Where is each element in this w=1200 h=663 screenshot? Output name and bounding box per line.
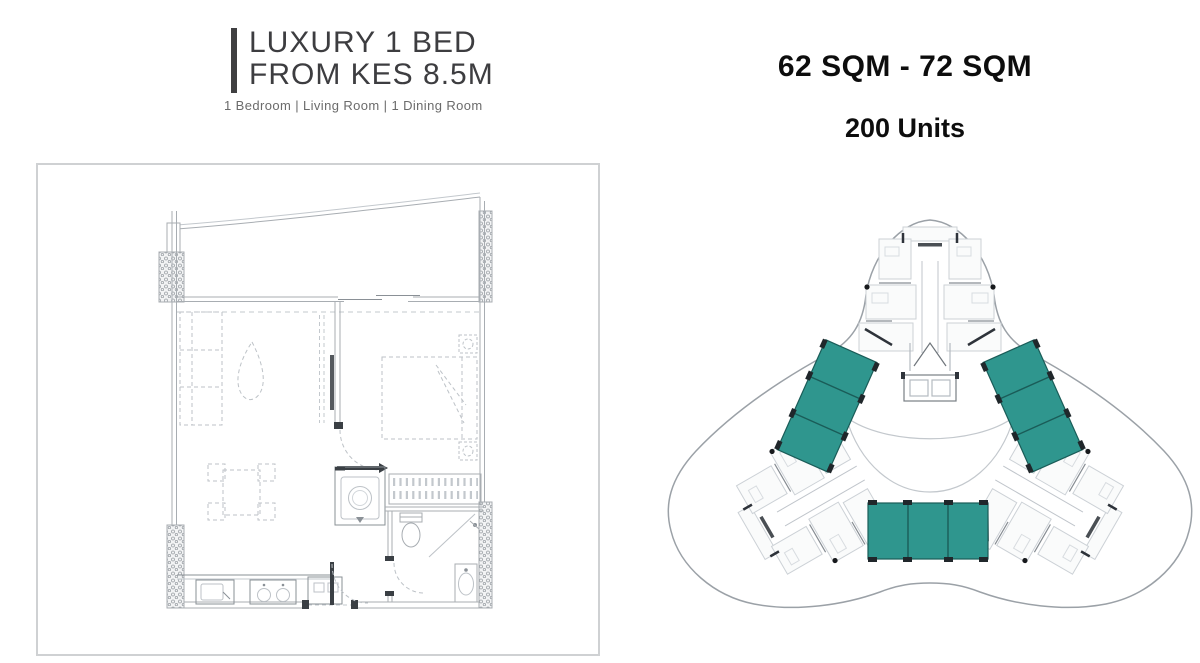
- area-range-text: 62 SQM - 72 SQM: [740, 50, 1070, 84]
- stats-block: 62 SQM - 72 SQM 200 Units: [740, 50, 1070, 144]
- cooktop: [250, 580, 296, 604]
- column-hatch: [167, 525, 184, 608]
- page-title: LUXURY 1 BED FROM KES 8.5M: [249, 27, 494, 91]
- sofa: [180, 312, 222, 425]
- floorplate-panel: [660, 203, 1200, 621]
- sink-vanity: [455, 564, 477, 602]
- floorplan-frame: [36, 163, 600, 656]
- unit-count-text: 200 Units: [740, 113, 1070, 144]
- kitchen-counter: [177, 575, 342, 604]
- column-hatch: [479, 502, 492, 608]
- toilet: [400, 513, 422, 547]
- outer-walls: [167, 197, 492, 608]
- column-hatch: [479, 211, 492, 302]
- dining-set: [208, 464, 275, 520]
- wardrobe: [389, 474, 481, 504]
- balcony: [159, 193, 492, 302]
- nightstands: [459, 335, 477, 460]
- highlighted-units-bottom: [868, 500, 988, 562]
- title-line-1: LUXURY 1 BED: [249, 27, 494, 59]
- floorplan-drawing: [38, 165, 598, 654]
- bed: [382, 357, 477, 439]
- bedroom-partition: [320, 302, 344, 429]
- fridge: [308, 577, 342, 604]
- coffee-table: [238, 342, 263, 400]
- washer: [335, 467, 385, 525]
- shower: [429, 514, 479, 557]
- title-line-2: FROM KES 8.5M: [249, 59, 494, 91]
- kitchen-sink: [196, 580, 234, 604]
- building-plate-drawing: [660, 203, 1200, 621]
- entry-door: [302, 562, 368, 609]
- brochure-page: LUXURY 1 BED FROM KES 8.5M 1 Bedroom | L…: [0, 0, 1200, 663]
- title-accent-bar: [231, 28, 237, 93]
- bathroom: [385, 507, 484, 602]
- room-list-subtitle: 1 Bedroom | Living Room | 1 Dining Room: [224, 98, 483, 113]
